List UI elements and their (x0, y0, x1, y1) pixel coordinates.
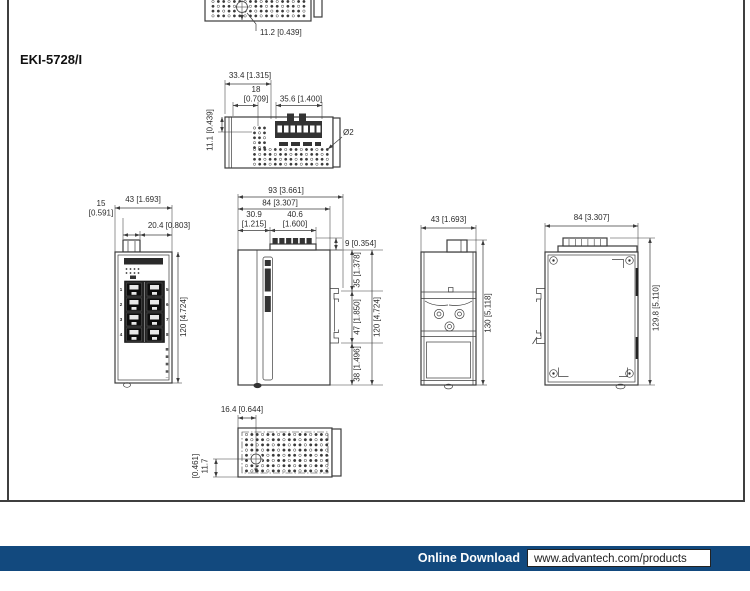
dim-label: 130 [5.118] (484, 293, 493, 332)
dim-label: Ø2 (343, 128, 354, 137)
dim-label: 38 [1.496] (353, 346, 362, 382)
dim-label: 15 (97, 199, 106, 208)
top-view: 33.4 [1.315] 18 [0.709] 35.6 [1.400] 11.… (206, 71, 355, 168)
bottom-view: 16.4 [0.644] 11.7 [0.461] (191, 405, 341, 478)
dim-label: 11.7 (201, 458, 210, 474)
dim-label: [1.600] (283, 220, 307, 229)
previous-drawing-bottom-view: 11.2 [0.439] (205, 0, 322, 37)
footer-download-label: Online Download (0, 546, 520, 571)
rear-view: 43 [1.693] 130 [5.118] (421, 215, 493, 389)
dim-label: 93 [3.661] (268, 186, 304, 195)
dim-label: [0.591] (89, 209, 113, 218)
dim-label: 18 (252, 85, 261, 94)
dim-label: 16.4 [0.644] (221, 405, 263, 414)
side-view: 93 [3.661] 84 [3.307] 30.9 [1.215] 40.6 … (238, 186, 383, 388)
dimension-drawings: 11.2 [0.439] 33.4 [1.315 (0, 0, 750, 540)
dim-label: 47 [1.850] (353, 299, 362, 335)
dim-label: 40.6 (287, 210, 303, 219)
dim-label: [0.461] (191, 454, 200, 478)
dim-label: 11.1 [0.439] (206, 109, 215, 151)
ground-screw (254, 383, 262, 388)
dim-label: 35.6 [1.400] (280, 95, 322, 104)
dim-label: 84 [3.307] (262, 199, 298, 208)
dim-label: 20.4 [0.803] (148, 221, 190, 230)
front-view: 1 2 3 4 5 6 7 8 15 [0.591] 43 [1.693] 20… (89, 195, 190, 387)
dim-label: 129.8 [5.110] (652, 285, 661, 331)
dim-label: 84 [3.307] (574, 213, 610, 222)
dim-label: 9 [0.354] (345, 239, 376, 248)
dim-label: [0.709] (244, 95, 268, 104)
dim-label: 11.2 [0.439] (260, 28, 302, 37)
dim-label: [1.215] (242, 220, 266, 229)
dim-label: 30.9 (246, 210, 262, 219)
dim-label: 43 [1.693] (125, 195, 161, 204)
datasheet-page: EKI-5728/I 11.2 [0.439] (0, 0, 750, 591)
right-side-view: 84 [3.307] 129.8 [5.110] (533, 213, 661, 389)
dim-label: 33.4 [1.315] (229, 71, 271, 80)
dim-label: 43 [1.693] (431, 215, 467, 224)
dim-label: 35 [1.378] (353, 252, 362, 288)
din-rail-clip (533, 289, 546, 345)
dim-label: 120 [4.724] (373, 297, 382, 337)
front-label-bar (124, 258, 163, 265)
dim-label: 120 [4.724] (179, 297, 188, 337)
footer-url: www.advantech.com/products (527, 549, 711, 567)
din-rail-clip (331, 289, 339, 344)
